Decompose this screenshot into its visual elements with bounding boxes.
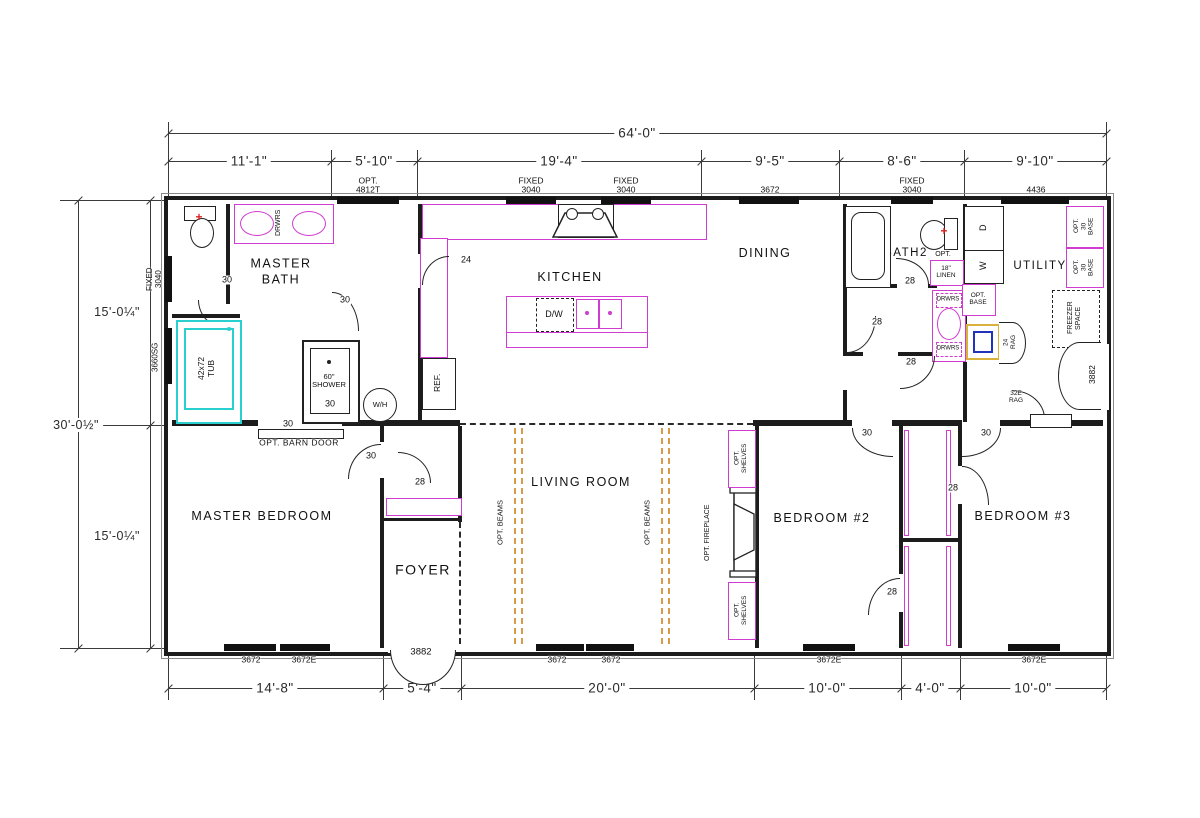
kitchen-island-ledge bbox=[506, 332, 648, 348]
label-water-heater: W/H bbox=[373, 401, 388, 409]
dim-ext bbox=[168, 652, 169, 700]
closet-shelf bbox=[386, 498, 462, 516]
door-size-shower: 30 bbox=[324, 400, 336, 409]
label-drawers: DRWRS bbox=[937, 297, 960, 304]
door-size-water-closet: 30 bbox=[221, 276, 233, 285]
dim-ext bbox=[701, 150, 702, 196]
room-label-foyer: FOYER bbox=[395, 561, 451, 579]
dim-line-top-row bbox=[168, 161, 1107, 162]
door-size-foyer-closet: 28 bbox=[414, 478, 426, 487]
sink-basin bbox=[937, 308, 961, 340]
sink-basin bbox=[240, 211, 274, 236]
dim-bottom-5: 4'-0" bbox=[911, 681, 948, 696]
door-size-bath2: 28 bbox=[904, 277, 916, 286]
wall-mbed-foyer bbox=[380, 478, 384, 648]
closet-rod bbox=[946, 546, 951, 646]
label-mbed-3672e: 3672E bbox=[292, 655, 317, 664]
window-left-fixed-3040 bbox=[165, 256, 172, 302]
wall-water-closet bbox=[226, 204, 230, 304]
label-dining-3672: 3672 bbox=[761, 185, 780, 194]
dim-ext bbox=[901, 652, 902, 700]
dim-top-3: 19'-4" bbox=[536, 154, 581, 169]
label-living-3672-a: 3672 bbox=[548, 655, 567, 664]
door-size-bath-hall: 30 bbox=[339, 296, 351, 305]
label-bed2-3672e: 3672E bbox=[817, 655, 842, 664]
bath2-tub-inner bbox=[851, 212, 885, 280]
dim-left-upper: 15'-0¼" bbox=[90, 305, 144, 319]
dim-bottom-1: 14'-8" bbox=[252, 681, 297, 696]
dim-top-4: 9'-5" bbox=[751, 154, 788, 169]
room-label-dining: DINING bbox=[739, 246, 792, 262]
dim-ext bbox=[461, 652, 462, 700]
dim-left-lower: 15'-0¼" bbox=[90, 529, 144, 543]
label-rear-door: 3882 bbox=[1086, 352, 1100, 398]
opt-beam-line bbox=[514, 428, 516, 644]
dim-ext bbox=[960, 652, 961, 700]
window-mbed-3672 bbox=[224, 644, 276, 651]
label-mbed-3672: 3672 bbox=[242, 655, 261, 664]
wall-closet-divider bbox=[899, 538, 962, 542]
dim-top-5: 8'-6" bbox=[883, 154, 920, 169]
window-living-3672-b bbox=[586, 644, 634, 651]
window-fixed-3040-b bbox=[601, 197, 651, 204]
wall-bath2-utility bbox=[963, 362, 967, 422]
room-label-master-bath: MASTER BATH bbox=[250, 256, 311, 287]
porch-bump bbox=[1030, 414, 1072, 428]
sink-dot bbox=[585, 311, 589, 315]
dim-ext bbox=[331, 150, 332, 196]
label-opt: OPT. bbox=[935, 251, 951, 259]
label-opt-beams: OPT. BEAMS bbox=[641, 492, 655, 552]
sink-dot bbox=[608, 311, 612, 315]
window-dining-3672 bbox=[739, 197, 799, 204]
room-label-kitchen: KITCHEN bbox=[537, 270, 602, 286]
tub-fixture-dot bbox=[227, 327, 231, 331]
label-fixed-3040-b: FIXED 3040 bbox=[613, 177, 638, 196]
label-tub: 42x72 TUB bbox=[195, 336, 219, 400]
label-left-3660sg: 3660SG bbox=[148, 330, 162, 384]
label-left-fixed-3040: FIXED 3040 bbox=[146, 256, 162, 302]
closet-rod bbox=[904, 546, 909, 646]
door-size-bath2-inner: 28 bbox=[871, 318, 883, 327]
dim-bottom-4: 10'-0" bbox=[804, 681, 849, 696]
burner bbox=[566, 208, 578, 220]
plumbing-marker: + bbox=[195, 211, 202, 223]
plumbing-marker: + bbox=[940, 225, 947, 237]
wall-closet-bed3 bbox=[958, 504, 962, 648]
door-size-bed2-closet: 28 bbox=[886, 588, 898, 597]
label-opt-30-base: OPT. 30 BASE bbox=[1070, 250, 1098, 284]
label-utility-4436: 4436 bbox=[1027, 185, 1046, 194]
mid-open-line bbox=[460, 423, 753, 425]
label-freezer-space: FREEZER SPACE bbox=[1058, 294, 1092, 342]
label-drawers: DRWRS bbox=[937, 346, 960, 353]
dim-top-2: 5'-10" bbox=[351, 154, 396, 169]
label-drawers: DRWRS bbox=[272, 206, 286, 240]
dim-line-bottom-row bbox=[168, 688, 1107, 689]
label-opt-beams: OPT. BEAMS bbox=[494, 492, 508, 552]
door-size-barn: 30 bbox=[282, 420, 294, 429]
label-barn-door: OPT. BARN DOOR bbox=[259, 438, 339, 447]
dim-ext bbox=[964, 150, 965, 196]
label-shower: 60" SHOWER bbox=[312, 373, 346, 390]
opt-beam-line bbox=[521, 428, 523, 644]
dim-top-1: 11'-1" bbox=[227, 154, 271, 169]
label-dishwasher: D/W bbox=[545, 310, 563, 320]
dim-bottom-3: 20'-0" bbox=[584, 681, 629, 696]
wall-bath2-lower bbox=[843, 352, 863, 356]
label-opt-transom: OPT. 4812T bbox=[356, 177, 380, 196]
door-size-bedroom3: 30 bbox=[980, 429, 992, 438]
door-size-bedroom2: 30 bbox=[861, 429, 873, 438]
dim-bottom-6: 10'-0" bbox=[1010, 681, 1055, 696]
door-size-bed3-closet: 28 bbox=[947, 484, 959, 493]
window-bath2-fixed-3040 bbox=[891, 197, 933, 204]
label-bath2-fixed-3040: FIXED 3040 bbox=[899, 177, 924, 196]
window-opt-transom bbox=[337, 197, 399, 204]
dim-ext bbox=[839, 150, 840, 196]
dim-top-6: 9'-10" bbox=[1012, 154, 1057, 169]
door-size-kitchen: 24 bbox=[460, 256, 472, 265]
opt-beam-line bbox=[661, 428, 663, 644]
label-fixed-3040-a: FIXED 3040 bbox=[518, 177, 543, 196]
label-rag-32e: 32E RAG bbox=[1009, 390, 1023, 404]
room-label-bedroom2: BEDROOM #2 bbox=[774, 511, 871, 527]
label-linen: 18" LINEN bbox=[936, 265, 955, 279]
laundry-sink-basin bbox=[973, 331, 993, 353]
burner bbox=[592, 208, 604, 220]
wall-bed2-closet bbox=[899, 612, 903, 648]
floor-plan-canvas: 64'-0" 11'-1" 5'-10" 19'-4" 9'-5" 8'-6" … bbox=[0, 0, 1200, 818]
dim-overall-width: 64'-0" bbox=[614, 126, 659, 141]
label-rag-24: 24 RAG bbox=[1000, 326, 1020, 358]
door-size-bath2-hall: 28 bbox=[905, 358, 917, 367]
label-dryer: D bbox=[972, 214, 994, 242]
label-opt-shelves: OPT. SHELVES bbox=[730, 432, 752, 484]
wall-mbed-foyer bbox=[380, 426, 384, 442]
window-bed2-3672e bbox=[803, 644, 855, 651]
window-bed3-3672e bbox=[1008, 644, 1060, 651]
opt-beam-line bbox=[668, 428, 670, 644]
door-size-master-bedroom: 30 bbox=[365, 452, 377, 461]
dim-ext bbox=[1106, 652, 1107, 700]
window-left-3660sg bbox=[165, 328, 172, 384]
opt-fireplace bbox=[718, 486, 758, 578]
label-living-3672-b: 3672 bbox=[602, 655, 621, 664]
room-label-bedroom3: BEDROOM #3 bbox=[975, 509, 1072, 525]
label-bed3-3672e: 3672E bbox=[1022, 655, 1047, 664]
window-mbed-3672e bbox=[280, 644, 330, 651]
range-hood bbox=[552, 212, 618, 238]
shower-drain-dot bbox=[327, 360, 331, 364]
window-fixed-3040-a bbox=[506, 197, 556, 204]
room-label-living-room: LIVING ROOM bbox=[531, 475, 631, 491]
label-washer: W bbox=[972, 252, 994, 280]
label-opt-base: OPT. BASE bbox=[969, 292, 986, 306]
room-label-master-bedroom: MASTER BEDROOM bbox=[191, 509, 332, 525]
window-living-3672-a bbox=[536, 644, 584, 651]
label-opt-fireplace: OPT. FIREPLACE bbox=[700, 494, 716, 572]
label-opt-30-base: OPT. 30 BASE bbox=[1070, 208, 1098, 244]
label-opt-shelves: OPT. SHELVES bbox=[730, 584, 752, 636]
dim-ext bbox=[383, 652, 384, 700]
sink-basin bbox=[292, 211, 326, 236]
dim-ext bbox=[754, 652, 755, 700]
room-label-utility: UTILITY bbox=[1013, 259, 1066, 273]
wall-dining-bath2 bbox=[843, 390, 847, 422]
closet-rod bbox=[904, 430, 909, 536]
window-utility-4436 bbox=[1001, 197, 1069, 204]
wall-bed2-closet bbox=[899, 426, 903, 574]
foyer-open-line bbox=[459, 522, 461, 644]
label-fridge: REF. bbox=[426, 362, 450, 404]
dim-left-total: 30'-0½" bbox=[49, 418, 103, 432]
dim-ext bbox=[417, 150, 418, 196]
label-front-door: 3882 bbox=[409, 647, 432, 657]
wall-foyer-closet bbox=[382, 518, 460, 521]
mid-wall bbox=[753, 420, 852, 426]
